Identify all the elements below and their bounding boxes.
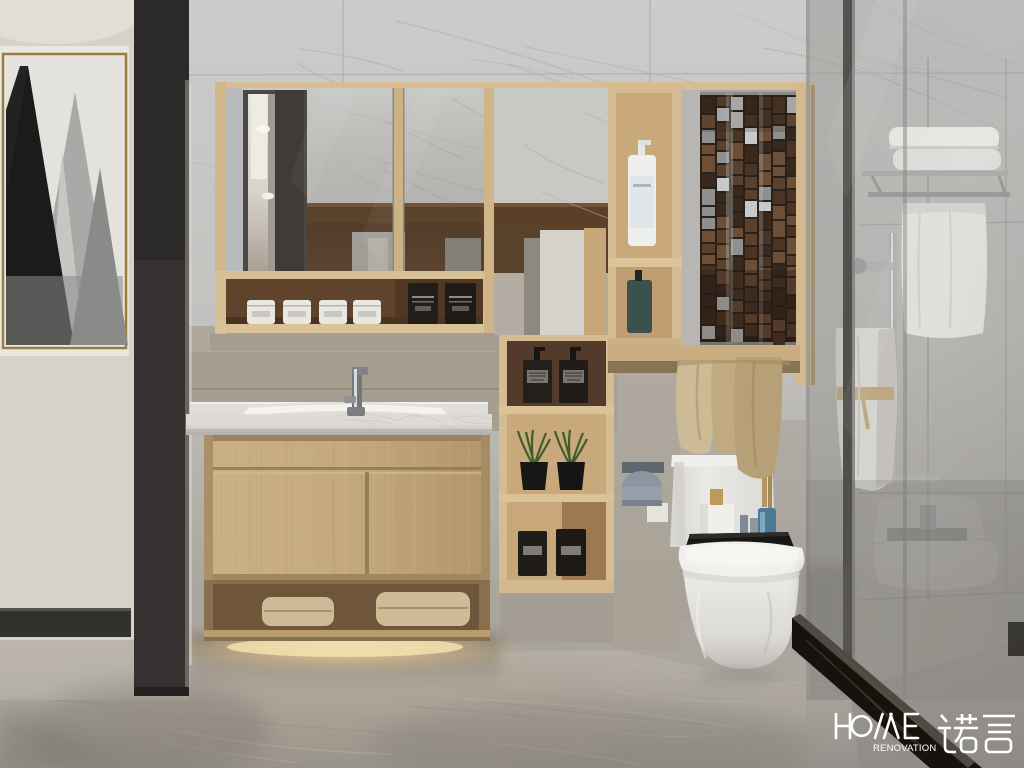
svg-text:RENOVATION: RENOVATION [873, 743, 936, 754]
